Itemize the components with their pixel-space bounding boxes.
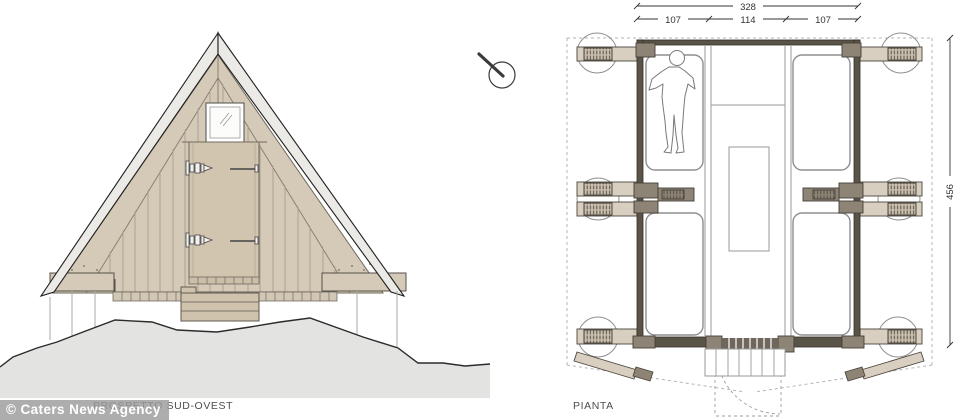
door-threshold	[189, 277, 259, 284]
entrance-steps	[705, 349, 785, 376]
dimension-labels-top: 328 107 114 107	[658, 1, 838, 26]
dim-depth: 456	[945, 184, 956, 200]
dim-center-bay: 114	[740, 15, 755, 26]
bed-top-right	[793, 55, 850, 170]
dim-total-width: 328	[740, 2, 756, 13]
watermark: © Caters News Agency	[0, 400, 169, 420]
plan-label: PIANTA	[573, 400, 614, 412]
elevation-drawing	[0, 33, 490, 398]
terrain	[0, 318, 490, 398]
gable-window	[206, 103, 244, 142]
technical-drawing-svg: 328 107 114 107 456	[0, 0, 962, 420]
blueprint-canvas: 328 107 114 107 456 PROSPETTO SUD-OVEST …	[0, 0, 962, 420]
bed-bottom-left	[646, 213, 703, 335]
north-compass-icon	[479, 54, 515, 88]
bed-bottom-right	[793, 213, 850, 335]
dim-left-bay: 107	[665, 15, 681, 26]
dim-right-bay: 107	[815, 15, 831, 26]
plan-entrance	[705, 336, 794, 376]
floor-plan-drawing: 328 107 114 107 456	[567, 1, 957, 416]
entrance-door	[182, 142, 267, 284]
corridor-table	[729, 147, 769, 251]
